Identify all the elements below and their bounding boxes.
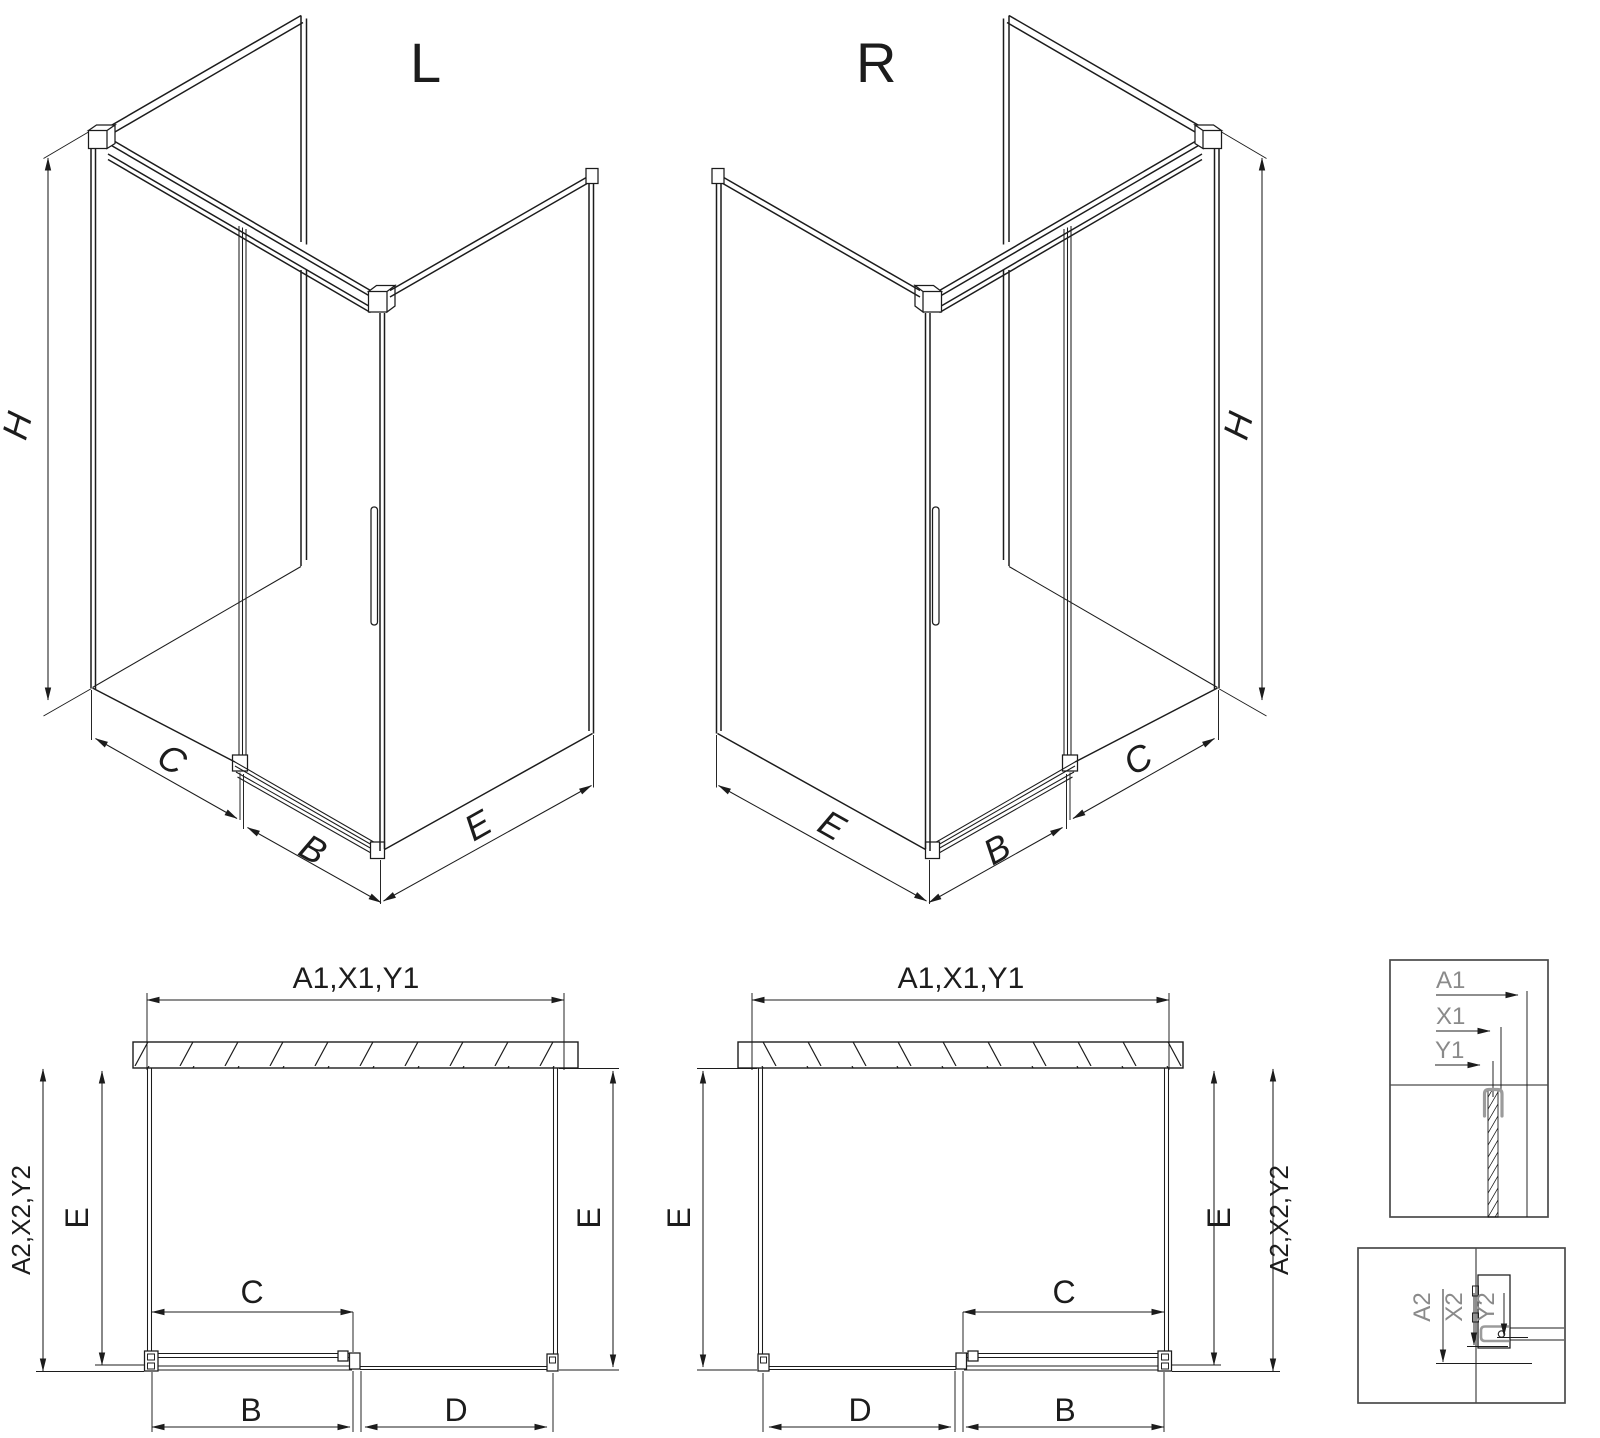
plan-right-label-D: D (848, 1392, 871, 1428)
detail-bottom-rail: A2 X2 Y2 (1358, 1248, 1565, 1403)
iso-right-dim-label-C: C (1116, 734, 1160, 783)
glass-section-hatched (1488, 1090, 1498, 1217)
iso-view-left: L H C B E (0, 16, 598, 905)
plan-left-label-E-right: E (571, 1207, 607, 1228)
plan-right-label-B: B (1054, 1392, 1075, 1428)
plan-right-label-E-left: E (661, 1207, 697, 1228)
plan-right-label-C: C (1052, 1274, 1075, 1310)
iso-right-dim-label-B: B (976, 825, 1017, 873)
plan-left-label-A1X1Y1: A1,X1,Y1 (293, 962, 420, 995)
detail-top-border (1390, 960, 1548, 1217)
plan-left-label-E-left: E (59, 1207, 95, 1228)
detail-label-X1: X1 (1436, 1003, 1465, 1030)
detail-label-A2: A2 (1409, 1292, 1436, 1321)
iso-left-dim-label-E: E (457, 801, 499, 849)
bottom-rail-lines (1510, 1328, 1564, 1340)
plan-right-label-A1X1Y1: A1,X1,Y1 (898, 962, 1025, 995)
technical-drawing-page: L H C B E R H C B E A1,X1,Y1 A2,X2,Y2 E … (0, 0, 1600, 1438)
plan-left-label-B: B (240, 1392, 261, 1428)
plan-right-label-E-right: E (1201, 1207, 1237, 1228)
plan-left-label-C: C (240, 1274, 263, 1310)
plan-left-label-D: D (444, 1392, 467, 1428)
iso-left-dim-label-C: C (151, 735, 195, 784)
iso-view-right: R H C B E (712, 16, 1267, 905)
view-left-title: L (410, 31, 441, 94)
detail-label-Y1: Y1 (1435, 1037, 1464, 1064)
detail-label-Y2: Y2 (1473, 1292, 1500, 1321)
shower-enclosure-diagram: L H C B E R H C B E A1,X1,Y1 A2,X2,Y2 E … (0, 0, 1600, 1438)
iso-left-dim-label-H: H (0, 407, 40, 444)
plan-left-label-A2X2Y2: A2,X2,Y2 (6, 1165, 36, 1275)
detail-label-A1: A1 (1436, 967, 1465, 994)
view-right-title: R (856, 31, 896, 94)
iso-right-dim-label-E: E (812, 801, 854, 849)
plan-view-right: A1,X1,Y1 A2,X2,Y2 E E C D B (661, 962, 1294, 1432)
detail-label-X2: X2 (1441, 1292, 1468, 1321)
plan-view-left: A1,X1,Y1 A2,X2,Y2 E E C B D (6, 962, 619, 1432)
iso-right-dim-label-H: H (1215, 407, 1262, 444)
plan-right-label-A2X2Y2: A2,X2,Y2 (1264, 1165, 1294, 1275)
detail-wall-profile: A1 X1 Y1 (1390, 960, 1548, 1217)
iso-left-dim-label-B: B (293, 825, 334, 873)
detail-bottom-border (1358, 1248, 1565, 1403)
